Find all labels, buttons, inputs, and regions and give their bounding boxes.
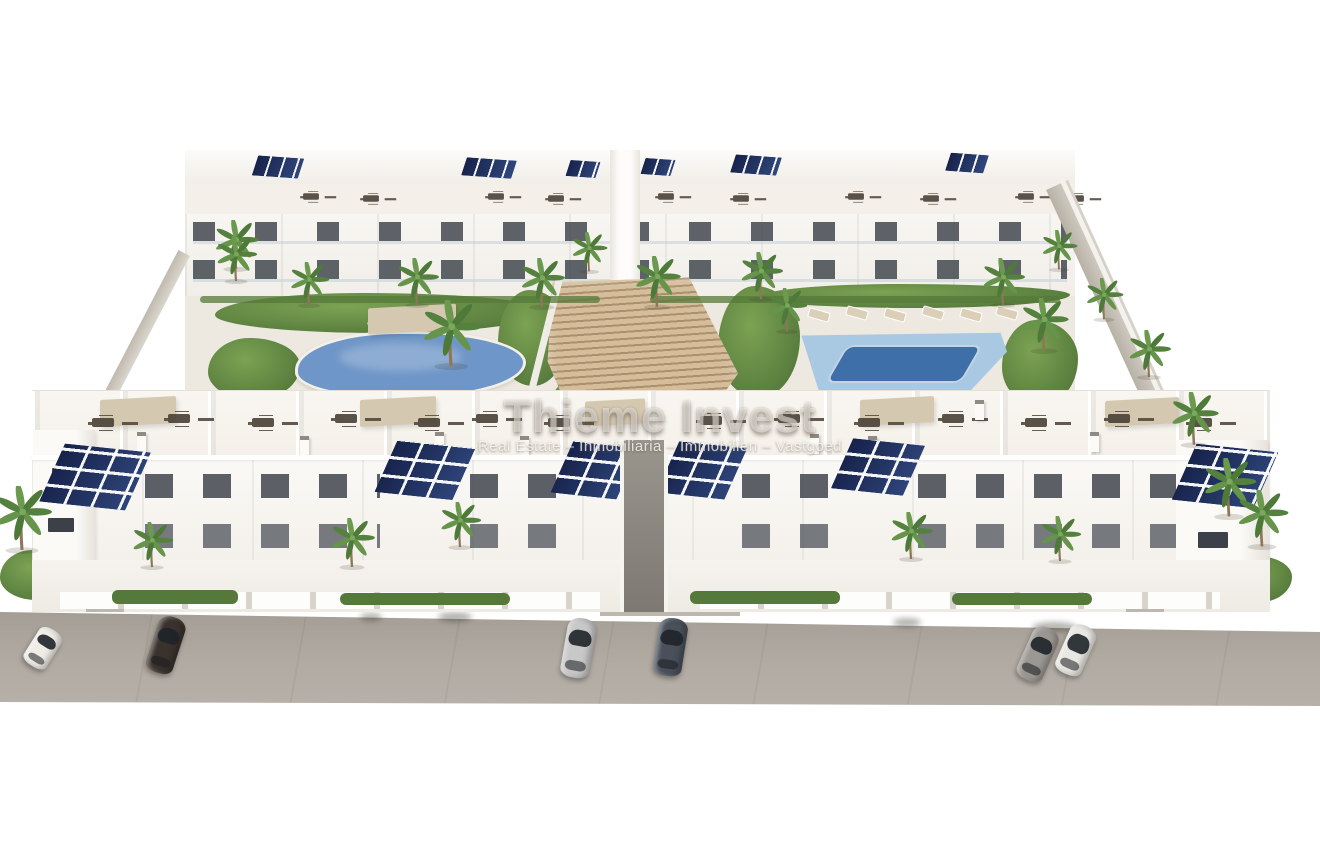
- hedge-row: [952, 593, 1092, 605]
- tower-window: [1198, 532, 1228, 548]
- solar-panel-array: [565, 160, 600, 178]
- palm-tree: [326, 518, 378, 570]
- tree-shadow: [438, 612, 472, 622]
- hedge-row: [340, 593, 510, 605]
- watermark-title: Thieme Invest: [0, 391, 1320, 443]
- watermark-subtitle: Real Estate – Inmobiliaria – Immobilien …: [0, 438, 1320, 455]
- terrace-dining-set: [658, 193, 674, 199]
- palm-tree: [1082, 278, 1126, 322]
- terrace-dining-set: [733, 195, 749, 201]
- hedge-row: [112, 590, 238, 604]
- terrace-dining-set: [1018, 193, 1034, 199]
- terrace-dining-set: [303, 193, 319, 199]
- palm-tree: [0, 486, 56, 554]
- palm-tree: [1038, 230, 1080, 272]
- palm-tree: [416, 300, 486, 370]
- solar-panel-array: [461, 157, 517, 178]
- terrace-dining-set: [548, 195, 564, 201]
- solar-panel-array: [640, 158, 675, 176]
- terrace-dining-set: [848, 193, 864, 199]
- palm-tree: [1124, 330, 1174, 380]
- terrace-dining-set: [488, 193, 504, 199]
- tree-shadow: [360, 613, 382, 621]
- window-band: [470, 474, 558, 498]
- architectural-rendering: Thieme Invest Real Estate – Inmobiliaria…: [0, 0, 1320, 859]
- palm-tree: [516, 258, 568, 310]
- window-band: [742, 474, 832, 498]
- central-alley: [620, 440, 668, 612]
- terrace-dining-set: [923, 195, 939, 201]
- palm-tree: [1036, 516, 1084, 564]
- window-band: [145, 474, 380, 498]
- solar-panel-array: [252, 155, 304, 178]
- window-band: [918, 474, 1176, 498]
- terrace-dining-set: [363, 195, 379, 201]
- palm-tree: [764, 288, 810, 334]
- palm-tree: [886, 512, 936, 562]
- hedge-row: [690, 591, 840, 604]
- palm-tree: [212, 236, 260, 284]
- palm-tree: [286, 262, 332, 308]
- right-pool-lap-lane: [825, 345, 983, 383]
- solar-panel-array: [945, 153, 989, 174]
- tree-shadow: [893, 618, 921, 627]
- palm-tree: [1016, 298, 1072, 354]
- palm-tree: [630, 256, 684, 310]
- solar-panel-array: [730, 154, 782, 175]
- palm-tree: [436, 502, 484, 550]
- window-band: [742, 524, 832, 548]
- palm-tree: [128, 522, 176, 570]
- palm-tree: [1232, 490, 1292, 550]
- palm-tree: [568, 232, 610, 274]
